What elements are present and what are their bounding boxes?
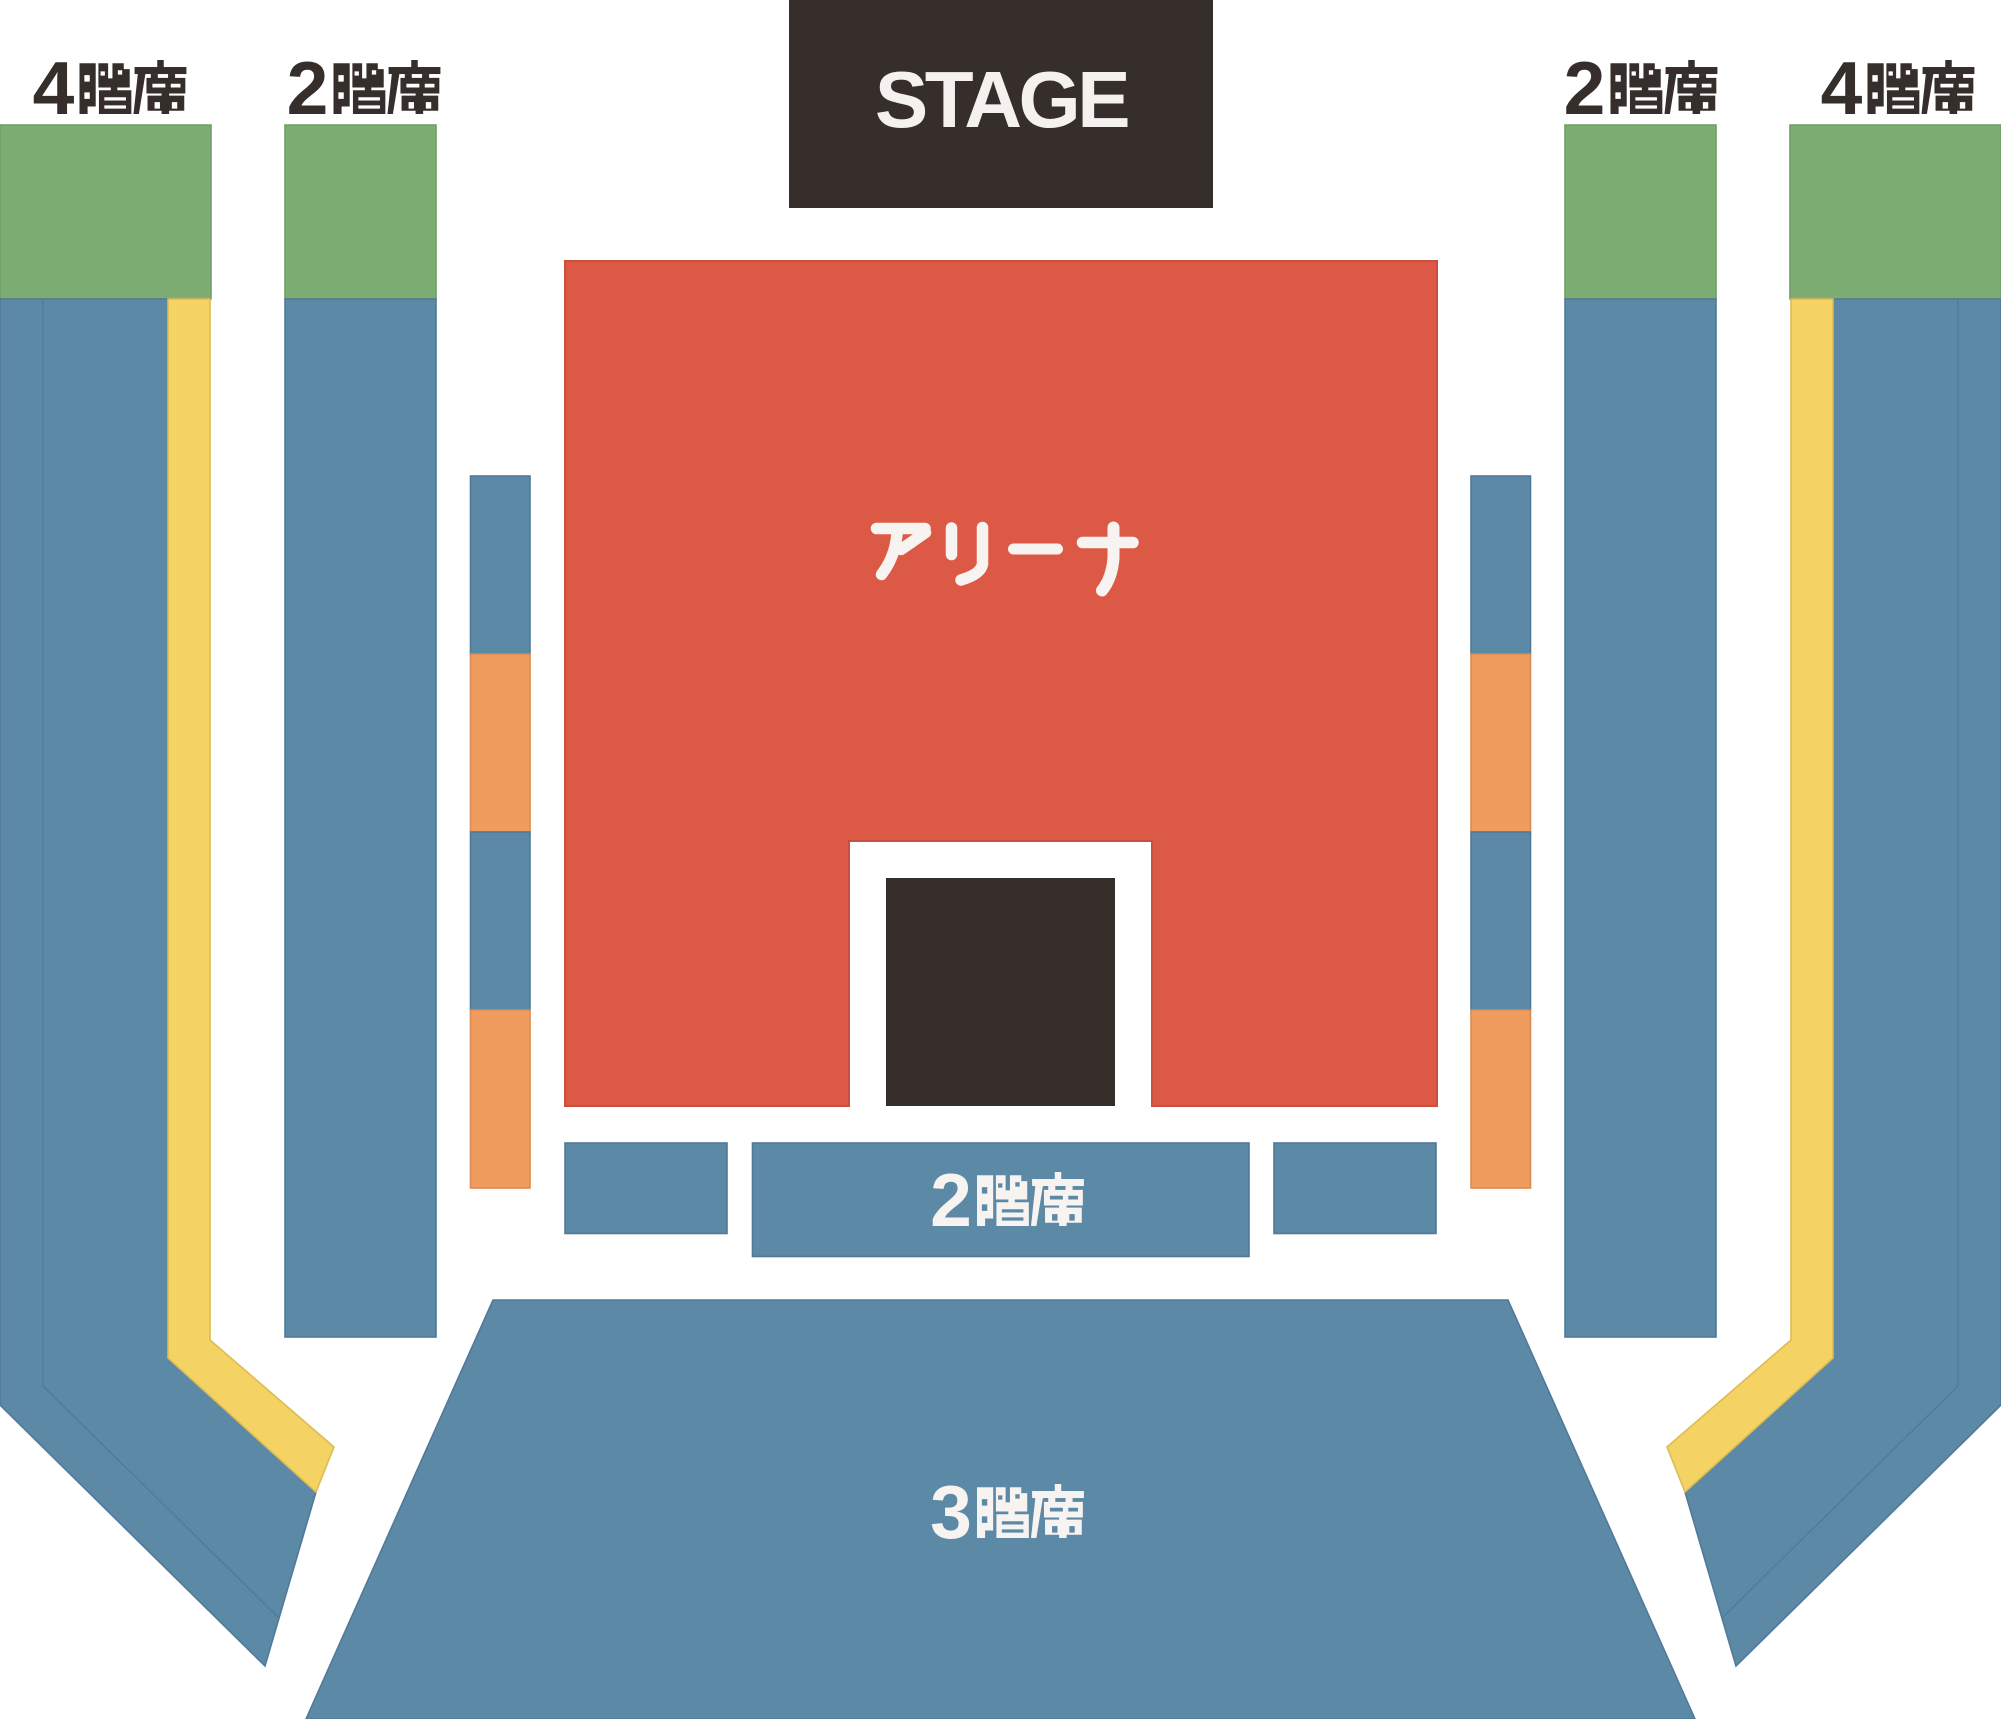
svg-text:3: 3 (930, 1470, 972, 1554)
svg-text:2: 2 (287, 46, 329, 130)
svg-text:4: 4 (1821, 46, 1863, 130)
svg-text:2: 2 (930, 1158, 972, 1242)
svg-text:2: 2 (1564, 46, 1606, 130)
svg-text:4: 4 (33, 46, 75, 130)
svg-text:STAGE: STAGE (875, 55, 1128, 144)
